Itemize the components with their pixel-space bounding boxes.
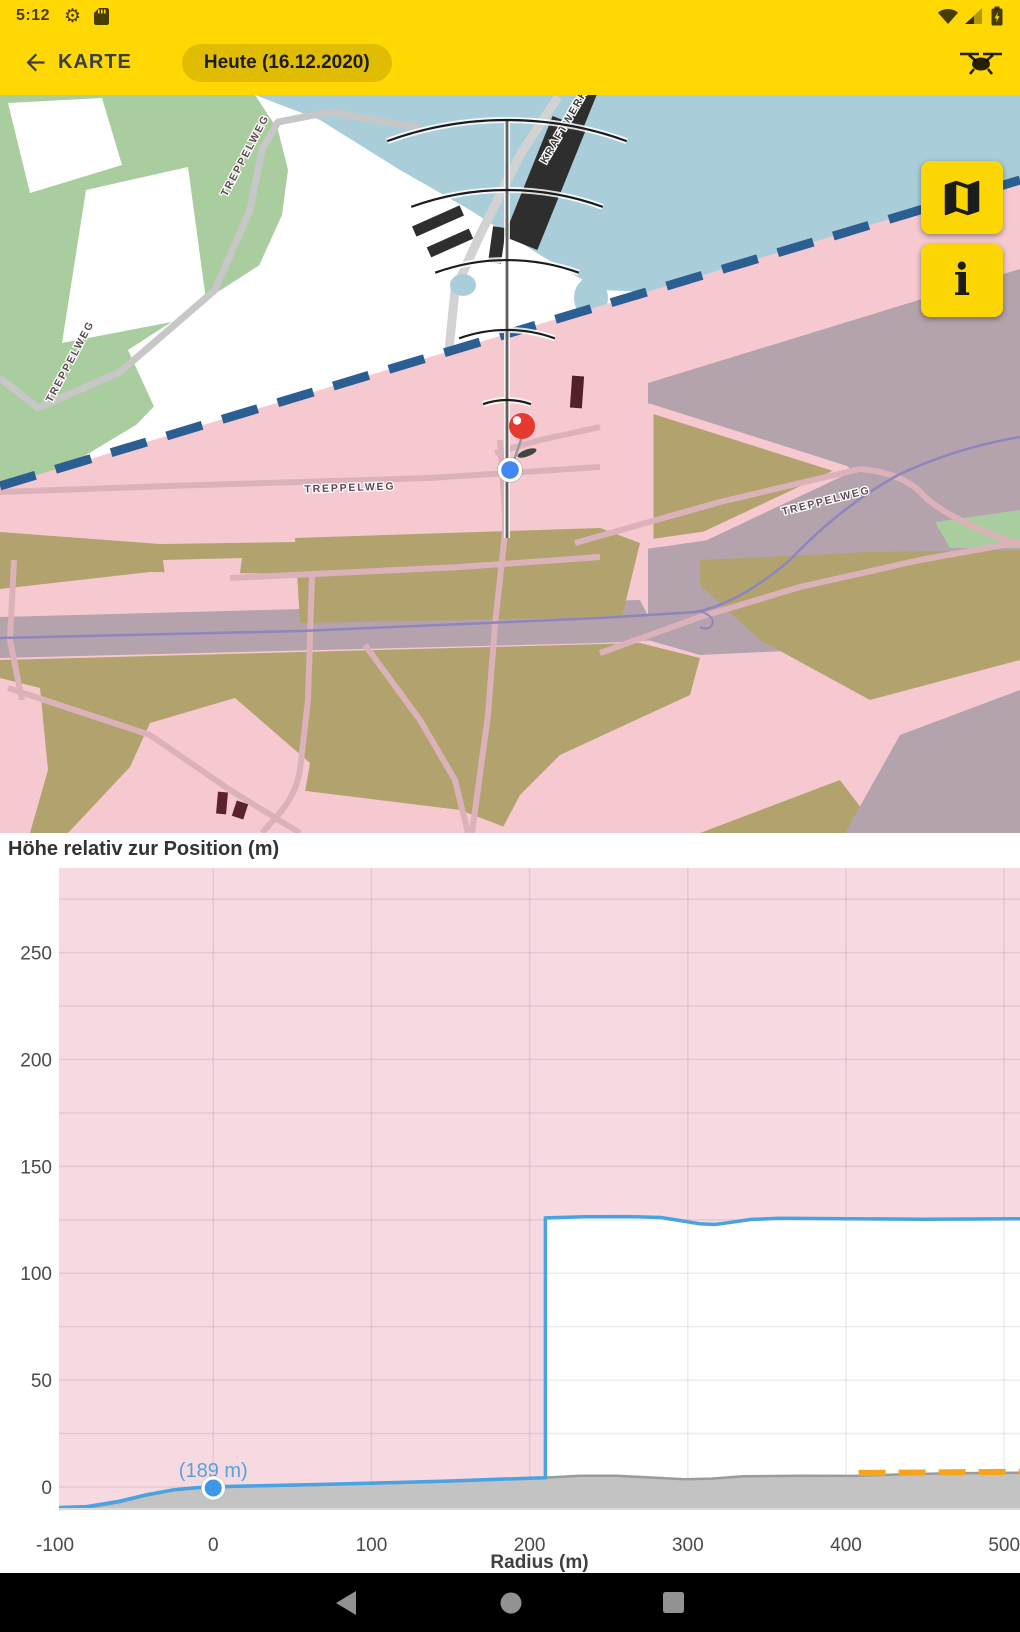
battery-charging-icon bbox=[990, 6, 1004, 26]
signal-icon bbox=[965, 8, 983, 25]
nav-home-icon bbox=[500, 1592, 522, 1614]
position-marker[interactable] bbox=[498, 458, 523, 483]
chart-xlabel: Radius (m) bbox=[490, 1552, 588, 1573]
back-button[interactable] bbox=[20, 48, 50, 78]
svg-text:250: 250 bbox=[20, 944, 52, 965]
nav-recents-icon bbox=[663, 1592, 684, 1613]
elevation-chart: (189 m)050100150200250-10001002003004005… bbox=[0, 833, 1020, 1573]
chart-title: Höhe relativ zur Position (m) bbox=[8, 838, 279, 861]
app-screen: 5:12 ⚙ bbox=[0, 0, 1020, 1632]
status-bar: 5:12 ⚙ bbox=[0, 0, 1020, 30]
elevation-panel: (189 m)050100150200250-10001002003004005… bbox=[0, 833, 1020, 1573]
app-header: 5:12 ⚙ bbox=[0, 0, 1020, 95]
svg-text:50: 50 bbox=[31, 1371, 52, 1392]
android-nav-bar bbox=[0, 1573, 1020, 1632]
drone-icon bbox=[958, 49, 1004, 77]
nav-recents-button[interactable] bbox=[643, 1573, 703, 1632]
nav-back-icon bbox=[336, 1591, 356, 1615]
svg-text:0: 0 bbox=[208, 1535, 219, 1556]
drone-button[interactable] bbox=[958, 49, 1004, 77]
map-layers-button[interactable] bbox=[921, 161, 1003, 234]
clock: 5:12 bbox=[16, 7, 50, 25]
date-chip[interactable]: Heute (16.12.2020) bbox=[182, 44, 392, 82]
info-button[interactable]: i bbox=[921, 244, 1003, 317]
svg-text:500: 500 bbox=[988, 1535, 1020, 1556]
gear-icon: ⚙ bbox=[64, 7, 81, 26]
svg-text:100: 100 bbox=[20, 1264, 52, 1285]
arrow-left-icon bbox=[22, 49, 49, 76]
map-canvas[interactable]: TREPPELWEG TREPPELWEG KRAFTWERK TREPPELW… bbox=[0, 95, 1020, 833]
sd-card-icon bbox=[93, 7, 110, 26]
svg-text:200: 200 bbox=[20, 1051, 52, 1072]
nav-home-button[interactable] bbox=[481, 1573, 541, 1632]
map-view[interactable]: TREPPELWEG TREPPELWEG KRAFTWERK TREPPELW… bbox=[0, 95, 1020, 833]
svg-text:150: 150 bbox=[20, 1157, 52, 1178]
svg-text:100: 100 bbox=[356, 1535, 388, 1556]
app-bar: KARTE Heute (16.12.2020) bbox=[0, 30, 1020, 95]
svg-text:0: 0 bbox=[41, 1478, 52, 1499]
nav-back-button[interactable] bbox=[316, 1573, 376, 1632]
page-title: KARTE bbox=[58, 51, 132, 74]
info-icon: i bbox=[954, 259, 971, 303]
svg-text:-100: -100 bbox=[36, 1535, 74, 1556]
svg-text:400: 400 bbox=[830, 1535, 862, 1556]
map-pond bbox=[450, 274, 476, 296]
svg-text:300: 300 bbox=[672, 1535, 704, 1556]
map-icon bbox=[939, 175, 985, 221]
wifi-icon bbox=[938, 8, 958, 25]
